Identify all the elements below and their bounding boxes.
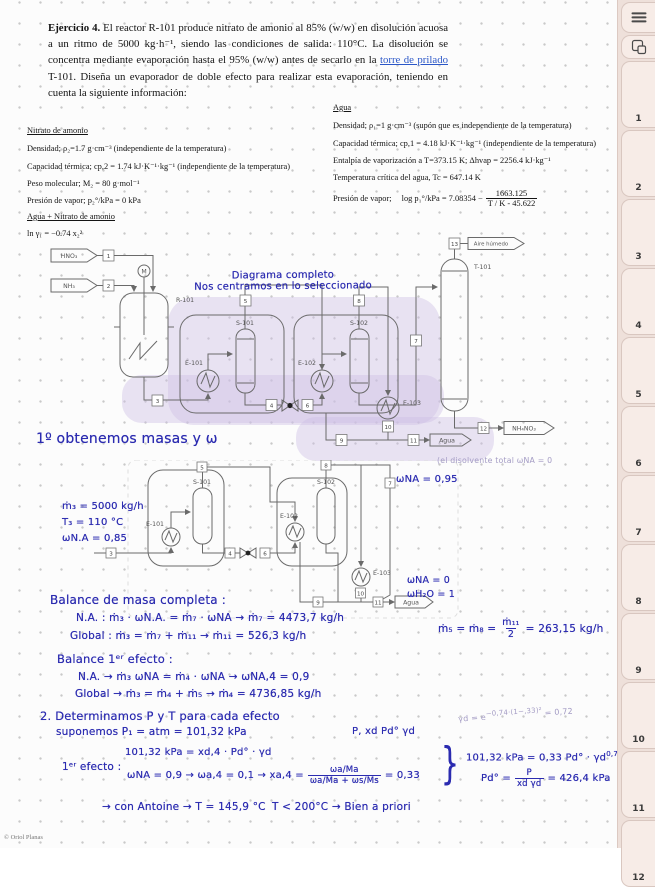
page-overview-tab[interactable] <box>621 35 655 59</box>
effect1-label: 1ᵉʳ efecto : <box>62 761 121 773</box>
pv-label: Presión de vapor; <box>333 194 392 203</box>
svg-text:8: 8 <box>324 463 328 469</box>
page-tab-6[interactable]: 6 <box>621 406 655 473</box>
app-window: Ejercicio 4. El reactor R-101 produce ni… <box>0 0 655 848</box>
feed-conditions-annotation: ṁ₃ = 5000 kg/h T₃ = 110 °C ωN.A = 0,85 <box>62 499 144 547</box>
svg-text:7: 7 <box>388 481 392 487</box>
pressure-eq-1: 101,32 kPa = xd,4 · Pd° · γd <box>125 747 272 758</box>
disolvente-note: (el disolvente total ωNA = 0 <box>437 456 552 465</box>
step2-assumption: suponemos P₁ = atm = 101,32 kPa <box>56 726 247 738</box>
page-tab-2[interactable]: 2 <box>621 130 655 197</box>
pressure-eq-2: 101,32 kPa = 0,33 Pd° · γd0,72 <box>466 750 623 763</box>
nitrato-properties: Nitrato de amonio Densidad; ρ₂=1.7 g·cm⁻… <box>27 126 335 246</box>
nitrato-peso-molecular: Peso molecular; M₂ = 80 g·mol⁻¹ <box>27 178 335 188</box>
evaporator-effect-1 <box>148 470 224 566</box>
page-overview-icon <box>631 39 647 55</box>
gamma-d-note: γd = e−0,74·(1−,33)² = 0,72 <box>458 704 573 724</box>
w95-annotation: ωNA = 0,95 <box>396 474 458 485</box>
temperature-check: T < 200°C → Bien a priori <box>272 801 411 813</box>
svg-text:6: 6 <box>306 403 310 409</box>
r101-label: R-101 <box>176 297 194 304</box>
page-tab-9[interactable]: 9 <box>621 613 655 680</box>
svg-text:7: 7 <box>414 339 418 345</box>
page-tab-4[interactable]: 4 <box>621 268 655 335</box>
svg-text:E-103: E-103 <box>403 400 421 407</box>
copyright-text: © Oriol Planas <box>4 834 43 841</box>
diagram-caption-annotation: Diagrama completo Nos centramos en lo se… <box>188 269 378 293</box>
svg-text:9: 9 <box>316 600 320 606</box>
outlet-composition-annotation: ωNA = 0 ωH₂O = 1 <box>407 574 455 602</box>
page-tab-11[interactable]: 11 <box>621 751 655 818</box>
step1-heading: 1º obtenemos masas y ω <box>36 431 218 447</box>
balance-effect1-heading: Balance 1ᵉʳ efecto : <box>57 652 173 666</box>
svg-text:12: 12 <box>480 426 487 432</box>
page-tab-10[interactable]: 10 <box>621 682 655 749</box>
page-tab-8[interactable]: 8 <box>621 544 655 611</box>
step2-heading: 2. Determinamos P y T para cada efecto <box>40 709 280 723</box>
balance-global-eq: Global : ṁ₃ = ṁ₇ + ṁ₁₁ → ṁ₁₁ = 526,3 kg/… <box>70 630 306 642</box>
agua-capacidad: Capacidad térmica; cp,1 = 4.18 kJ·K⁻¹·kg… <box>333 138 617 148</box>
svg-text:NH₄NO₃: NH₄NO₃ <box>512 426 536 433</box>
page-tab-7[interactable]: 7 <box>621 475 655 542</box>
svg-text:T-101: T-101 <box>473 264 491 271</box>
agua-temperatura-critica: Temperatura crítica del agua, Tc = 647.1… <box>333 173 617 182</box>
separator-s101 <box>193 488 212 544</box>
page-tab-1[interactable]: 1 <box>621 61 655 128</box>
pd-eq: Pd° = Pxd γd = 426,4 kPa <box>481 768 611 789</box>
svg-text:8: 8 <box>357 299 361 305</box>
svg-text:E-102: E-102 <box>298 360 316 367</box>
agua-properties: Agua Densidad; ρ₁=1 g·cm⁻³ (supón que es… <box>333 103 617 216</box>
agua-heading: Agua <box>333 103 617 112</box>
nh3-label: NH₃ <box>63 283 75 290</box>
svg-text:5: 5 <box>244 299 248 305</box>
antoine-conclusion: → con Antoine → T = 145,9 °C <box>102 801 266 813</box>
page-navigation-sidebar: 1 2 3 4 5 6 7 8 9 10 11 12 <box>617 0 655 848</box>
hamburger-icon <box>631 10 646 25</box>
balance-na-eq: N.A. : ṁ₃ · ωN.A. = ṁ₇ · ωNA → ṁ₇ = 4473… <box>76 612 344 624</box>
effect1-global-eq: Global → ṁ₃ = ṁ₄ + ṁ₅ → ṁ₄ = 4736,85 kg/… <box>75 688 322 700</box>
svg-text:11: 11 <box>374 600 382 606</box>
agua-densidad: Densidad; ρ₁=1 g·cm⁻³ (supón que es inde… <box>333 120 617 130</box>
svg-text:2: 2 <box>107 284 111 290</box>
svg-text:11: 11 <box>410 438 418 444</box>
hno3-label: HNO₃ <box>61 253 78 260</box>
svg-text:10: 10 <box>357 591 365 597</box>
menu-tab[interactable] <box>621 2 655 33</box>
separator-s102 <box>317 488 335 544</box>
agua-presion-vapor-formula: Presión de vapor; log p₁°/kPa = 7.08354 … <box>333 189 617 208</box>
svg-text:E-101: E-101 <box>146 521 164 528</box>
svg-text:Aire húmedo: Aire húmedo <box>474 241 508 248</box>
svg-text:5: 5 <box>200 465 204 471</box>
nitrato-densidad: Densidad; ρ₂=1.7 g·cm⁻³ (independiente d… <box>27 143 335 153</box>
effect1-na-eq: N.A. → ṁ₃ ωNA = ṁ₄ · ωNA → ωNA,4 = 0,9 <box>78 671 309 683</box>
svg-text:3: 3 <box>109 551 113 557</box>
svg-text:13: 13 <box>451 242 459 248</box>
page-tab-5[interactable]: 5 <box>621 337 655 404</box>
exercise-statement: Ejercicio 4. El reactor R-101 produce ni… <box>48 20 448 101</box>
m5-m8-eq: ṁ₅ = ṁ₈ = ṁ₁₁2 = 263,15 kg/h <box>438 617 603 640</box>
svg-text:M: M <box>141 269 146 276</box>
torre-de-prilado-link[interactable]: torre de prilado <box>380 54 448 66</box>
exercise-title: Ejercicio 4. <box>48 22 100 34</box>
svg-text:9: 9 <box>340 438 344 444</box>
page-tab-12[interactable]: 12 <box>621 820 655 887</box>
pv-prefix: log p₁°/kPa = 7.08354 − <box>402 194 483 203</box>
page-tab-3[interactable]: 3 <box>621 199 655 266</box>
nitrato-heading: Nitrato de amonio <box>27 126 335 135</box>
balance-heading: Balance de masa completa : <box>50 593 226 607</box>
pv-fraction: 1663.125 T / K - 45.622 <box>486 189 538 208</box>
exercise-text-2: T-101. Diseña un evaporador de doble efe… <box>48 71 448 99</box>
prilling-tower-t101 <box>441 259 468 411</box>
svg-text:3: 3 <box>156 399 160 405</box>
agua-entalpia: Entalpía de vaporización a T=373.15 K; Δ… <box>333 155 617 165</box>
svg-text:6: 6 <box>263 551 267 557</box>
svg-text:1: 1 <box>107 254 111 260</box>
nitrato-presion-vapor: Presión de vapor; p₂°/kPa = 0 kPa <box>27 196 335 205</box>
grouping-brace: } <box>441 738 459 789</box>
agua-nitrato-heading: Agua + Nitrato de amonio <box>27 212 335 221</box>
molar-fraction-eq: ωNA = 0,9 → ωa,4 = 0,1 → xa,4 = ωa/Maωa/… <box>127 765 420 786</box>
document-page-canvas[interactable]: Ejercicio 4. El reactor R-101 produce ni… <box>0 0 617 848</box>
svg-text:10: 10 <box>384 425 392 431</box>
svg-text:4: 4 <box>228 551 232 557</box>
svg-text:E-103: E-103 <box>373 570 391 577</box>
svg-text:E-102: E-102 <box>280 513 298 520</box>
nitrato-capacidad: Capacidad térmica; cp,2 = 1.74 kJ·K⁻¹·kg… <box>27 161 335 171</box>
pxd-note: P, xd Pd° γd <box>352 726 415 737</box>
svg-text:Agua: Agua <box>439 438 455 445</box>
svg-text:E-101: E-101 <box>185 360 203 367</box>
svg-text:4: 4 <box>270 403 274 409</box>
